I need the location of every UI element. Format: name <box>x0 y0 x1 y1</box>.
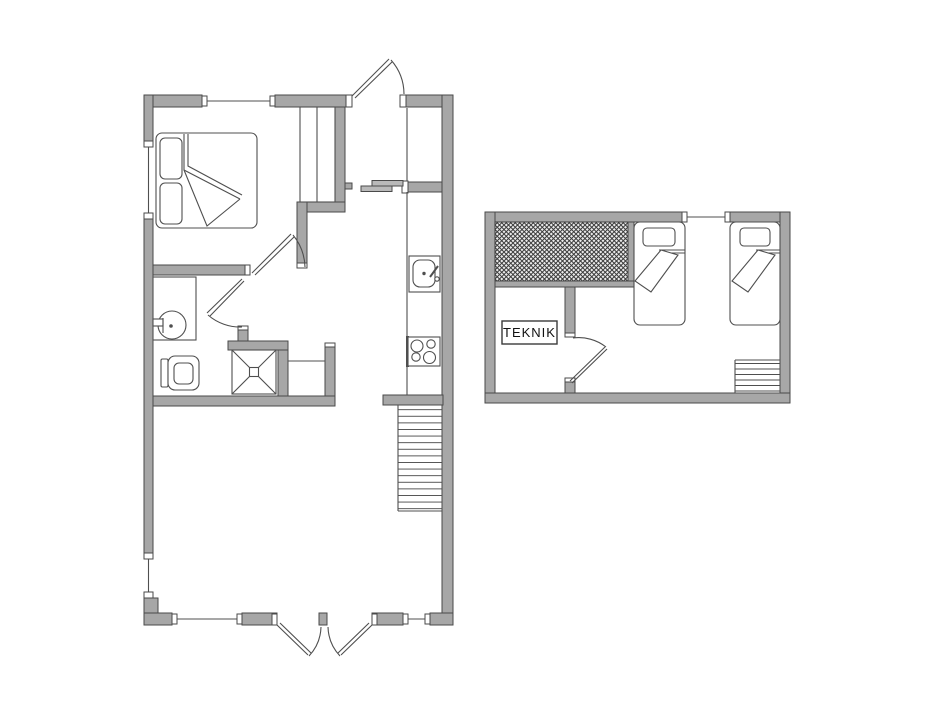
shower <box>232 350 276 394</box>
staircase-ground <box>398 405 442 511</box>
window-left-bedroom <box>144 141 153 219</box>
wardrobe <box>300 107 335 202</box>
stove <box>406 336 440 367</box>
hatched-void <box>495 222 634 287</box>
upper-floor-plan: TEKNIK <box>485 212 790 403</box>
window-left-living <box>144 553 153 598</box>
pillow <box>643 228 675 246</box>
teknik-room-label: TEKNIK <box>502 321 557 344</box>
floor-plan-canvas: TEKNIK <box>0 0 950 713</box>
pillow <box>740 228 770 246</box>
staircase-upper <box>735 360 780 393</box>
washbasin <box>153 311 186 339</box>
window-bottom-left <box>172 614 242 624</box>
single-bed-left <box>634 222 685 325</box>
window-top <box>682 212 730 222</box>
sliding-door <box>361 181 403 192</box>
double-bed <box>156 133 257 228</box>
kitchen-sink <box>409 256 440 292</box>
pillow <box>160 138 182 179</box>
toilet <box>161 356 199 390</box>
bathroom-door <box>207 279 244 327</box>
pillow <box>160 183 182 224</box>
ground-floor-plan <box>144 59 453 656</box>
window-top <box>202 96 275 106</box>
teknik-label-text: TEKNIK <box>503 325 556 340</box>
teknik-door <box>570 338 607 383</box>
floor-plan-drawing: TEKNIK <box>0 0 950 713</box>
shower-drain <box>250 368 259 377</box>
window-bottom-right <box>403 614 430 624</box>
entry-door <box>346 59 406 107</box>
single-bed-right <box>730 222 780 325</box>
